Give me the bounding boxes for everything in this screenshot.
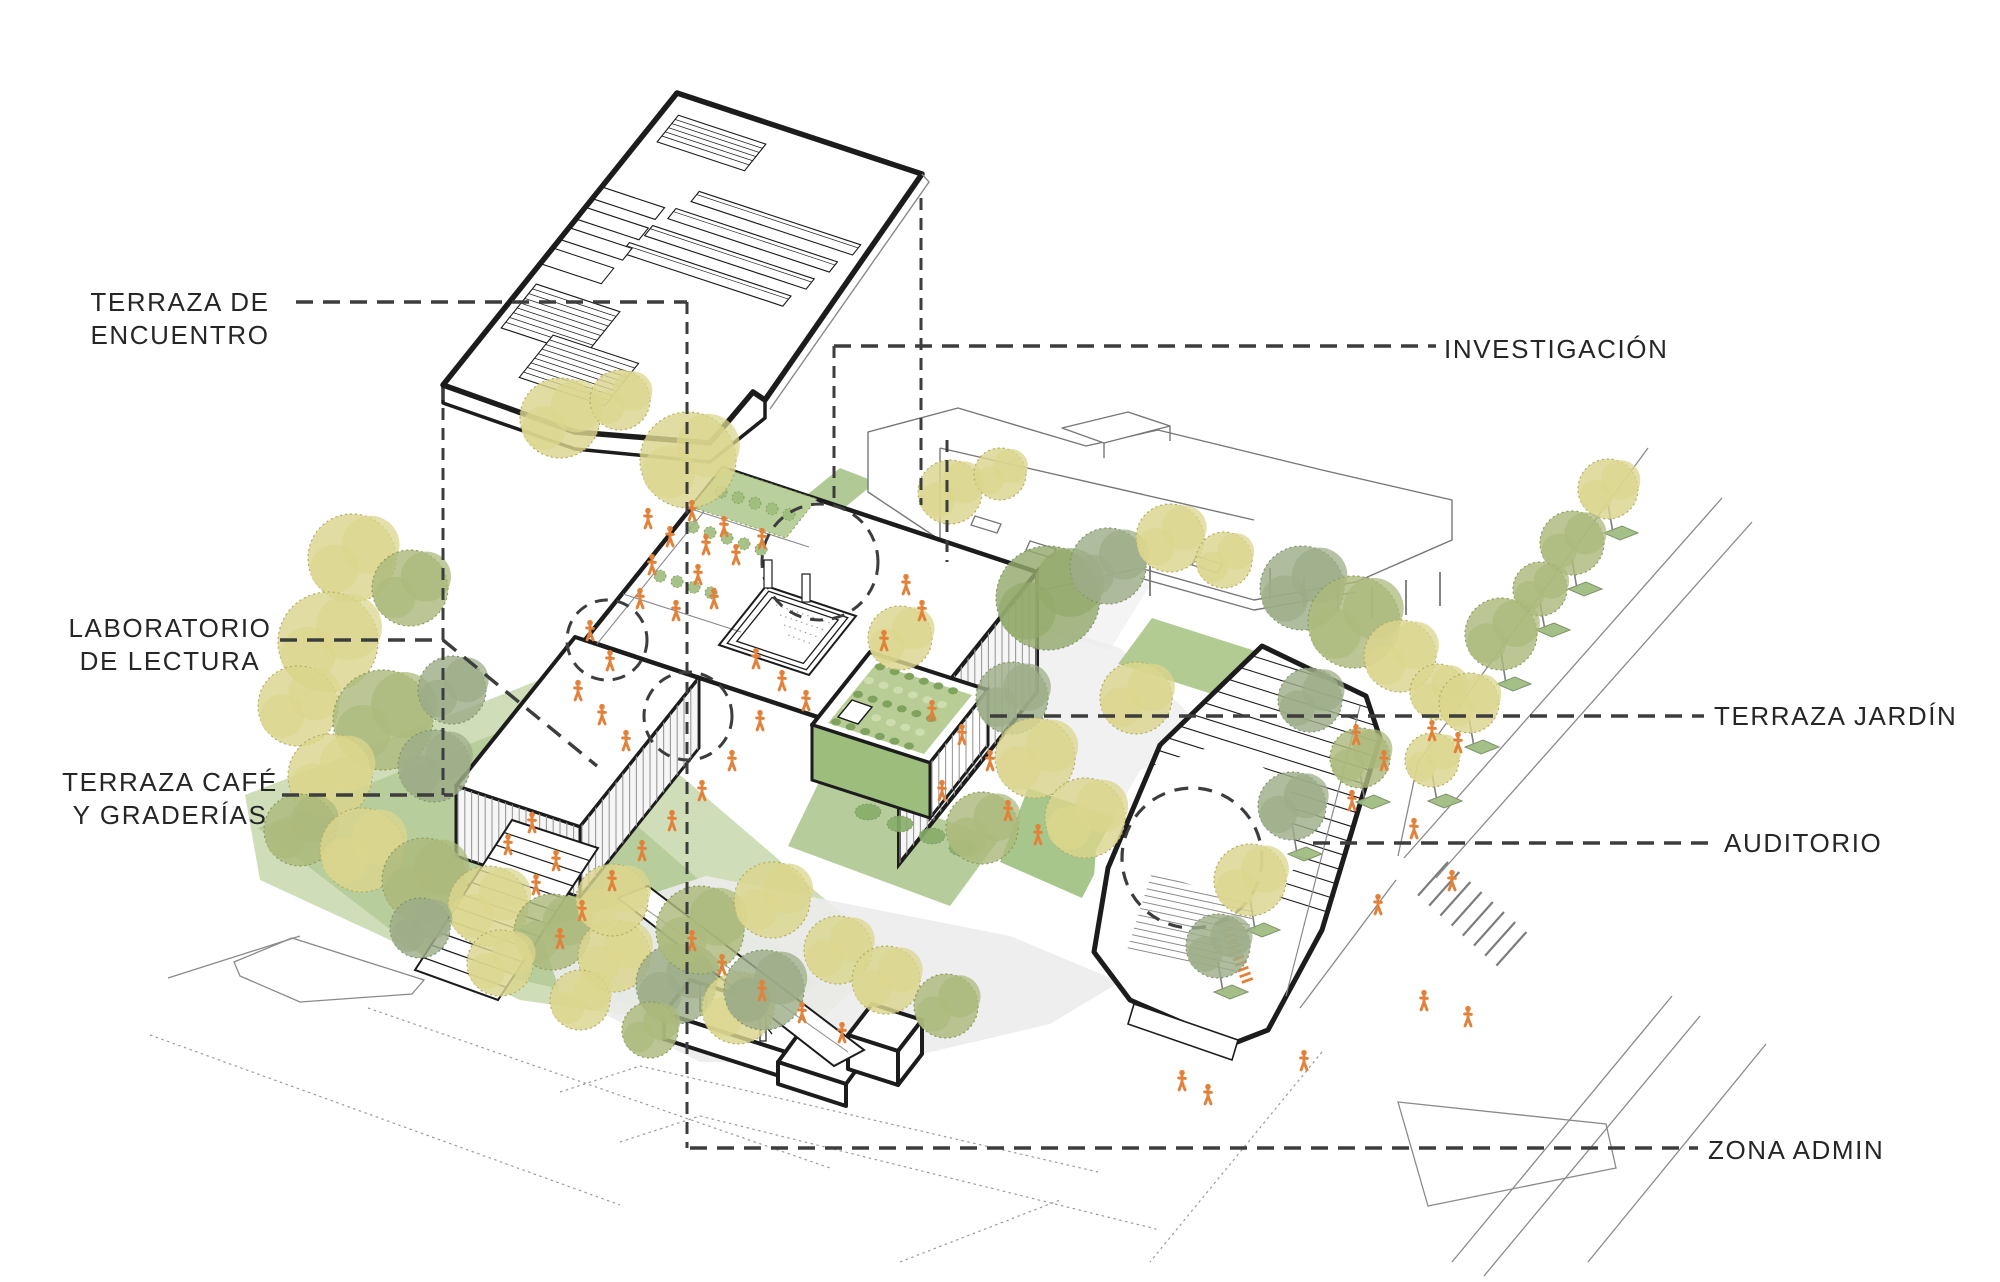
person-figure	[1411, 818, 1418, 838]
person-figure	[987, 750, 994, 770]
site-drawing	[0, 0, 2000, 1282]
label-line: DE LECTURA	[45, 645, 295, 678]
label-line: TERRAZA CAFÉ	[45, 766, 295, 799]
person-figure	[1205, 1084, 1212, 1104]
tree	[550, 970, 612, 1030]
label-laboratorio-de-lectura: LABORATORIO DE LECTURA	[45, 612, 295, 678]
label-line: ENCUENTRO	[55, 319, 305, 352]
person-figure	[757, 710, 764, 730]
tree	[1405, 733, 1462, 808]
person-figure	[1465, 1006, 1472, 1026]
person-figure	[1375, 894, 1382, 914]
label-terraza-jardin: TERRAZA JARDÍN	[1714, 700, 1957, 733]
person-figure	[645, 508, 652, 528]
label-line: TERRAZA DE	[55, 286, 305, 319]
tree	[622, 1002, 680, 1058]
person-figure	[1421, 990, 1428, 1010]
label-auditorio: AUDITORIO	[1724, 827, 1882, 860]
label-investigacion: INVESTIGACIÓN	[1444, 333, 1669, 366]
label-terraza-cafe-y-graderias: TERRAZA CAFÉ Y GRADERÍAS	[45, 766, 295, 832]
person-figure	[1301, 1050, 1308, 1070]
label-line: LABORATORIO	[45, 612, 295, 645]
tree	[372, 550, 451, 626]
label-terraza-de-encuentro: TERRAZA DE ENCUENTRO	[55, 286, 305, 352]
axonometric-diagram: TERRAZA DE ENCUENTRO INVESTIGACIÓN LABOR…	[0, 0, 2000, 1282]
person-figure	[1179, 1070, 1186, 1090]
label-line: Y GRADERÍAS	[45, 799, 295, 832]
person-figure	[1449, 870, 1456, 890]
crosswalk	[1418, 862, 1526, 966]
person-figure	[729, 750, 736, 770]
label-zona-admin: ZONA ADMIN	[1708, 1134, 1884, 1167]
